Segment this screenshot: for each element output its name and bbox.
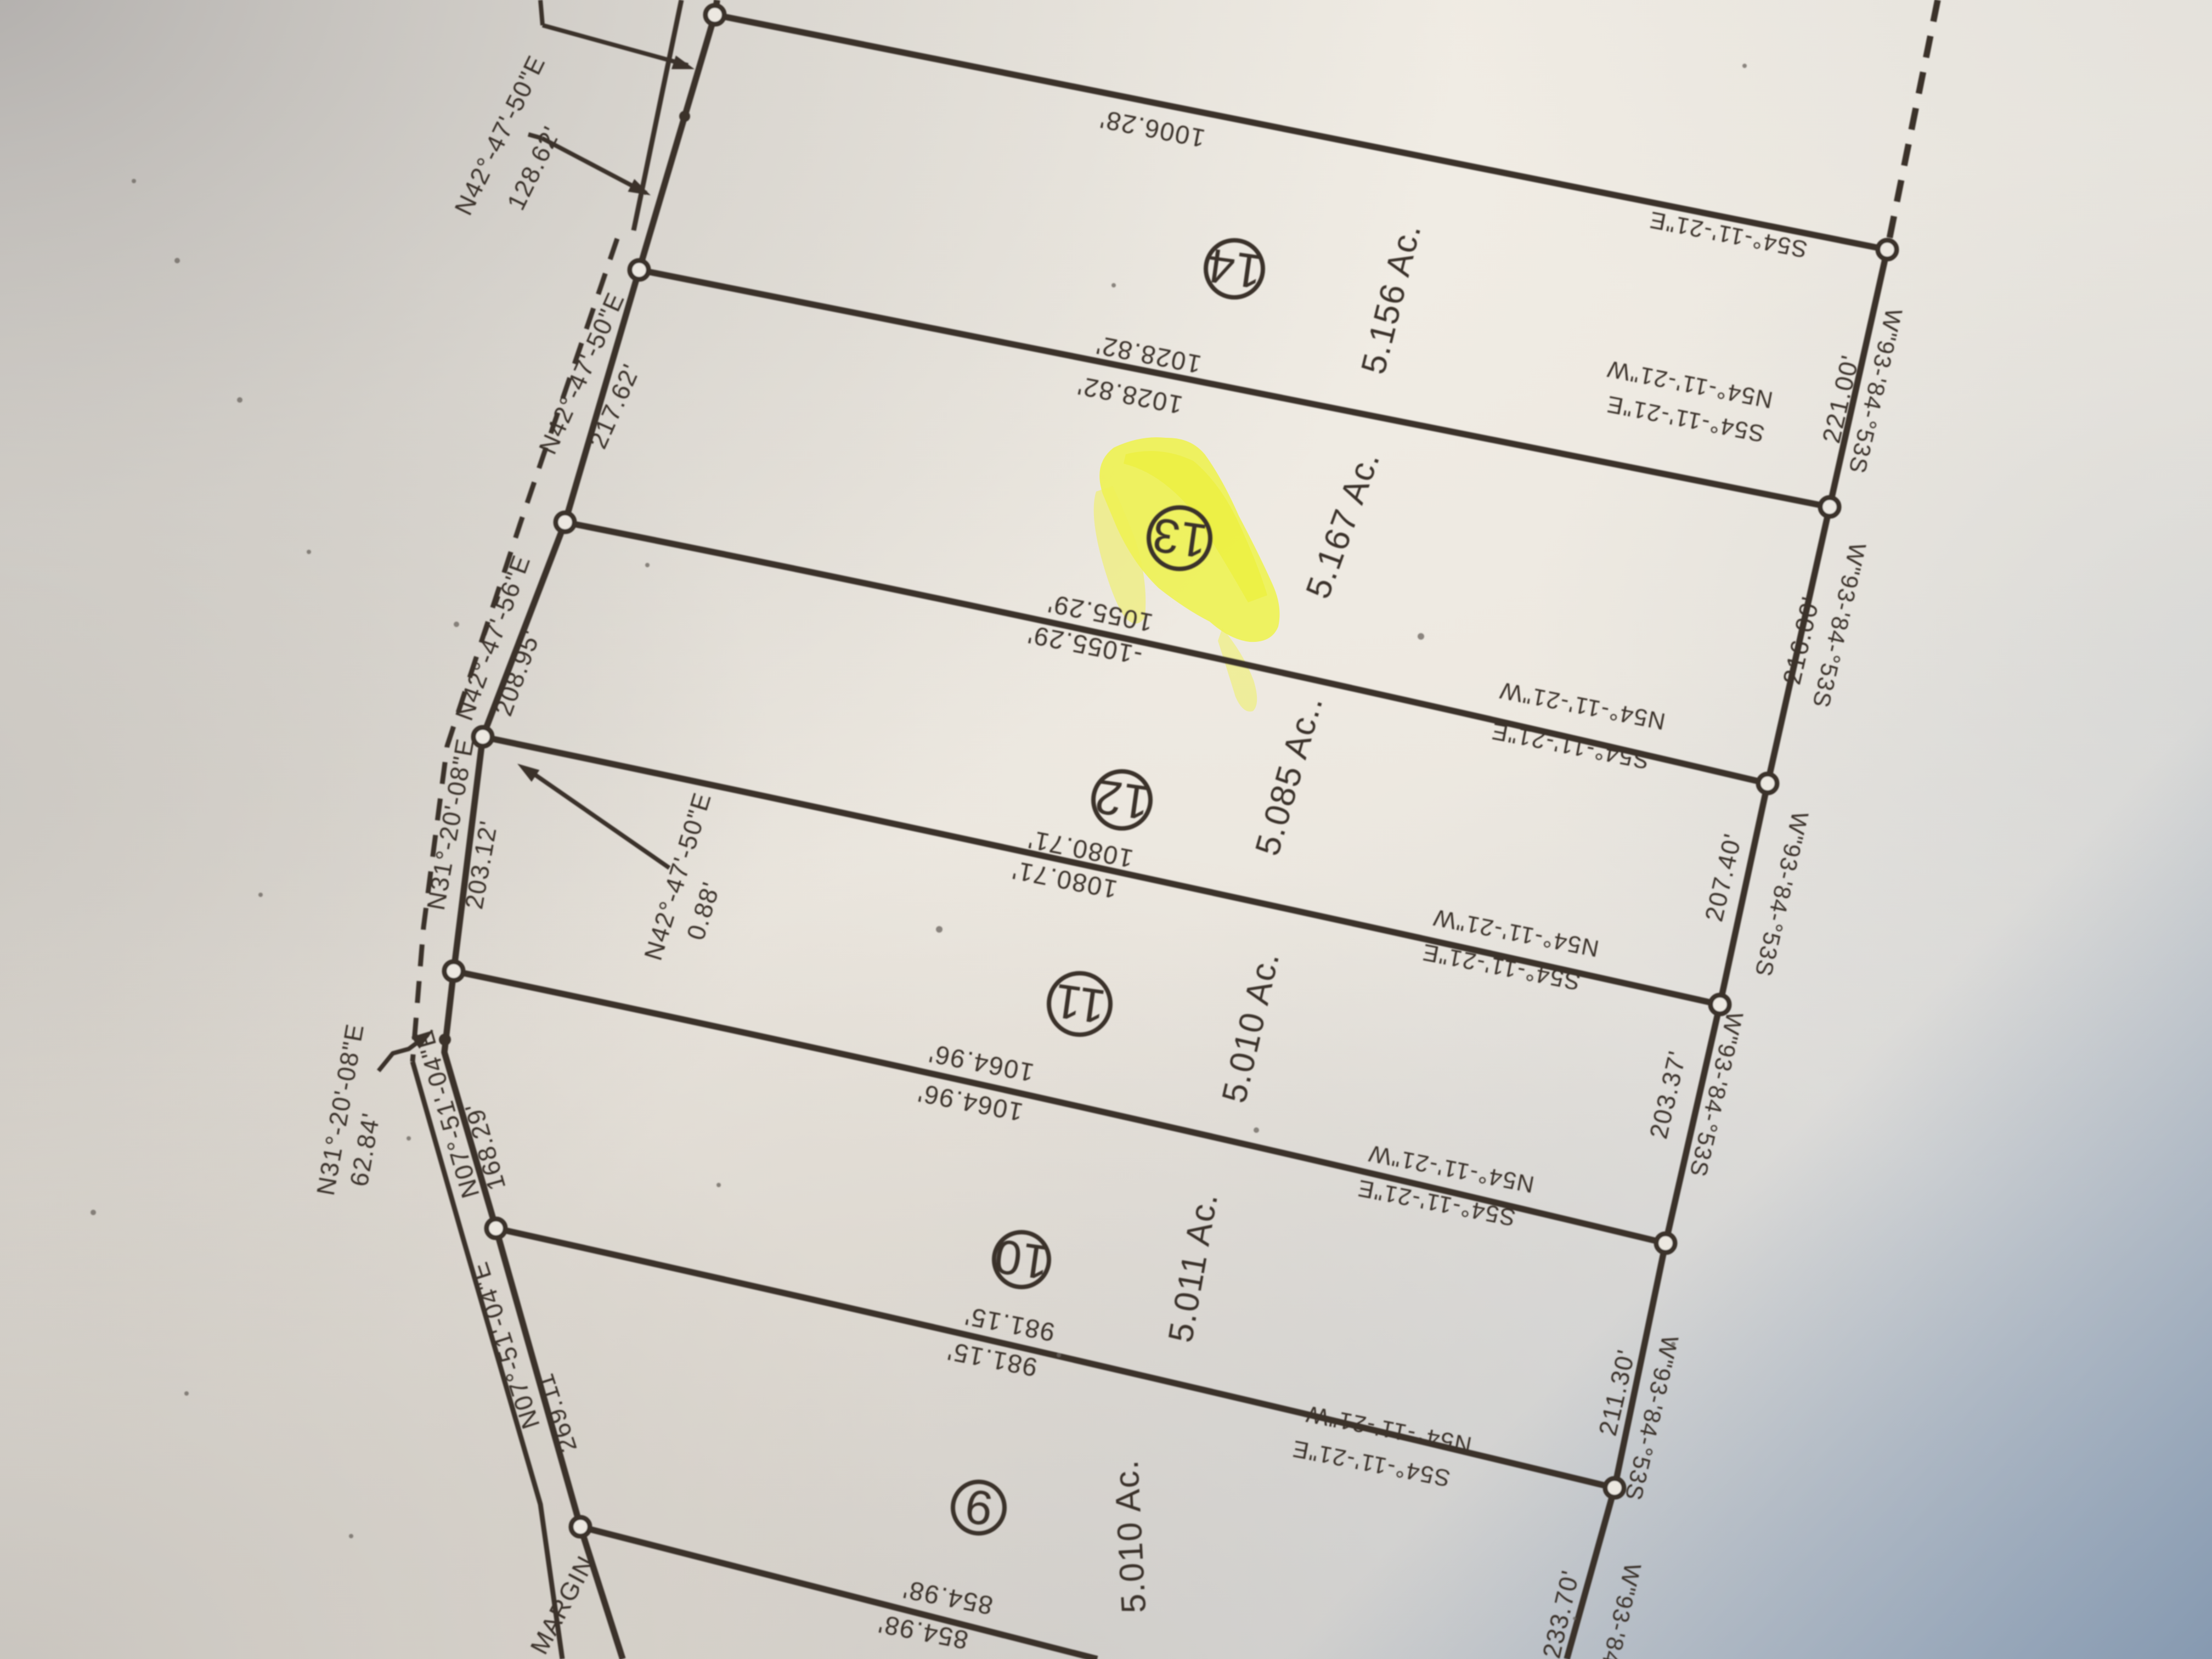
svg-text:14: 14 xyxy=(1204,238,1266,300)
svg-text:12: 12 xyxy=(1091,769,1153,831)
svg-text:10: 10 xyxy=(991,1229,1053,1290)
svg-text:5.010 Ac.: 5.010 Ac. xyxy=(1107,1458,1154,1614)
svg-text:13: 13 xyxy=(1149,507,1211,569)
svg-text:11: 11 xyxy=(1051,973,1109,1034)
